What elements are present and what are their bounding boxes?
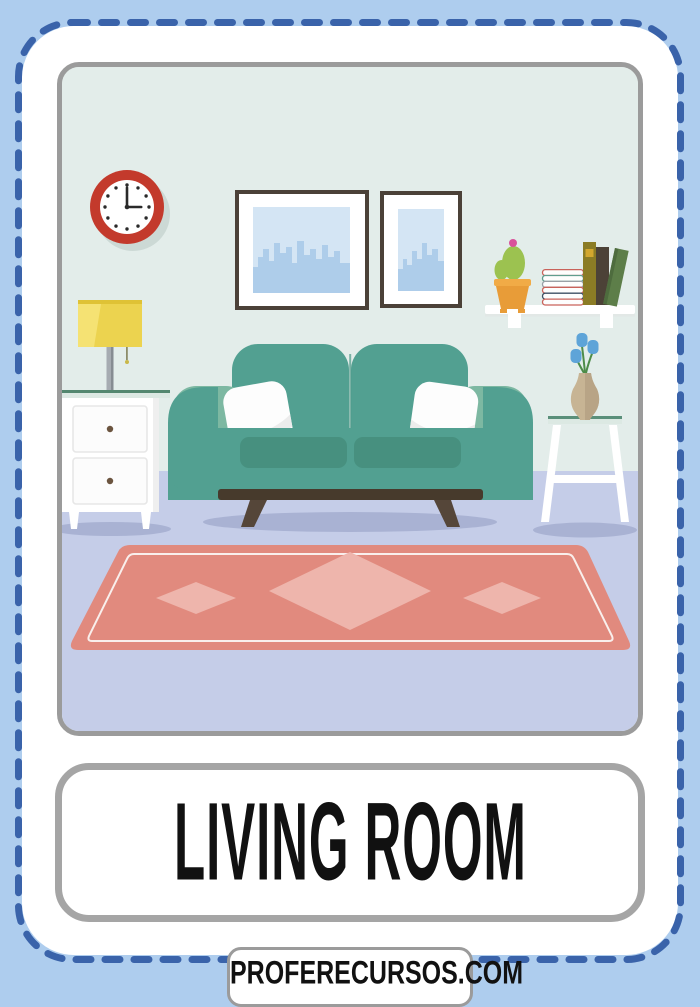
flashcard-page: { "flashcard": { "title": "LIVING ROOM",… <box>0 0 700 990</box>
rug <box>71 545 630 650</box>
nightstand-side-shade <box>153 398 159 512</box>
glass-top-edge <box>62 390 170 393</box>
stool-crossbar <box>548 475 622 483</box>
lamp-cord <box>126 347 128 360</box>
shelf-bracket <box>600 314 613 328</box>
picture-frame-portrait <box>382 193 460 306</box>
stool-shadow <box>533 523 637 538</box>
picture-frame-landscape <box>237 192 367 308</box>
room-illustration-panel <box>57 62 643 736</box>
sofa-back-seam <box>349 354 351 439</box>
lamp-pole-shade <box>111 347 114 394</box>
sofa-body <box>170 428 531 490</box>
glass-top <box>62 393 170 398</box>
watermark-text: PROFERECURSOS.COM <box>230 955 523 993</box>
title-label-box: LIVING ROOM <box>55 763 645 922</box>
page-title: LIVING ROOM <box>174 779 527 906</box>
lamp-shade-top <box>78 300 142 304</box>
cactus-flower <box>509 239 517 247</box>
lamp-cord-pull <box>125 360 129 364</box>
sofa-base <box>218 489 483 500</box>
book-stack-icon <box>543 270 584 305</box>
drawer-knob <box>107 478 113 484</box>
watermark-box: PROFERECURSOS.COM <box>227 947 473 1007</box>
living-room-scene <box>62 67 638 731</box>
shelf-bracket <box>508 314 521 328</box>
pot-rim <box>494 279 531 286</box>
drawer-knob <box>107 426 113 432</box>
